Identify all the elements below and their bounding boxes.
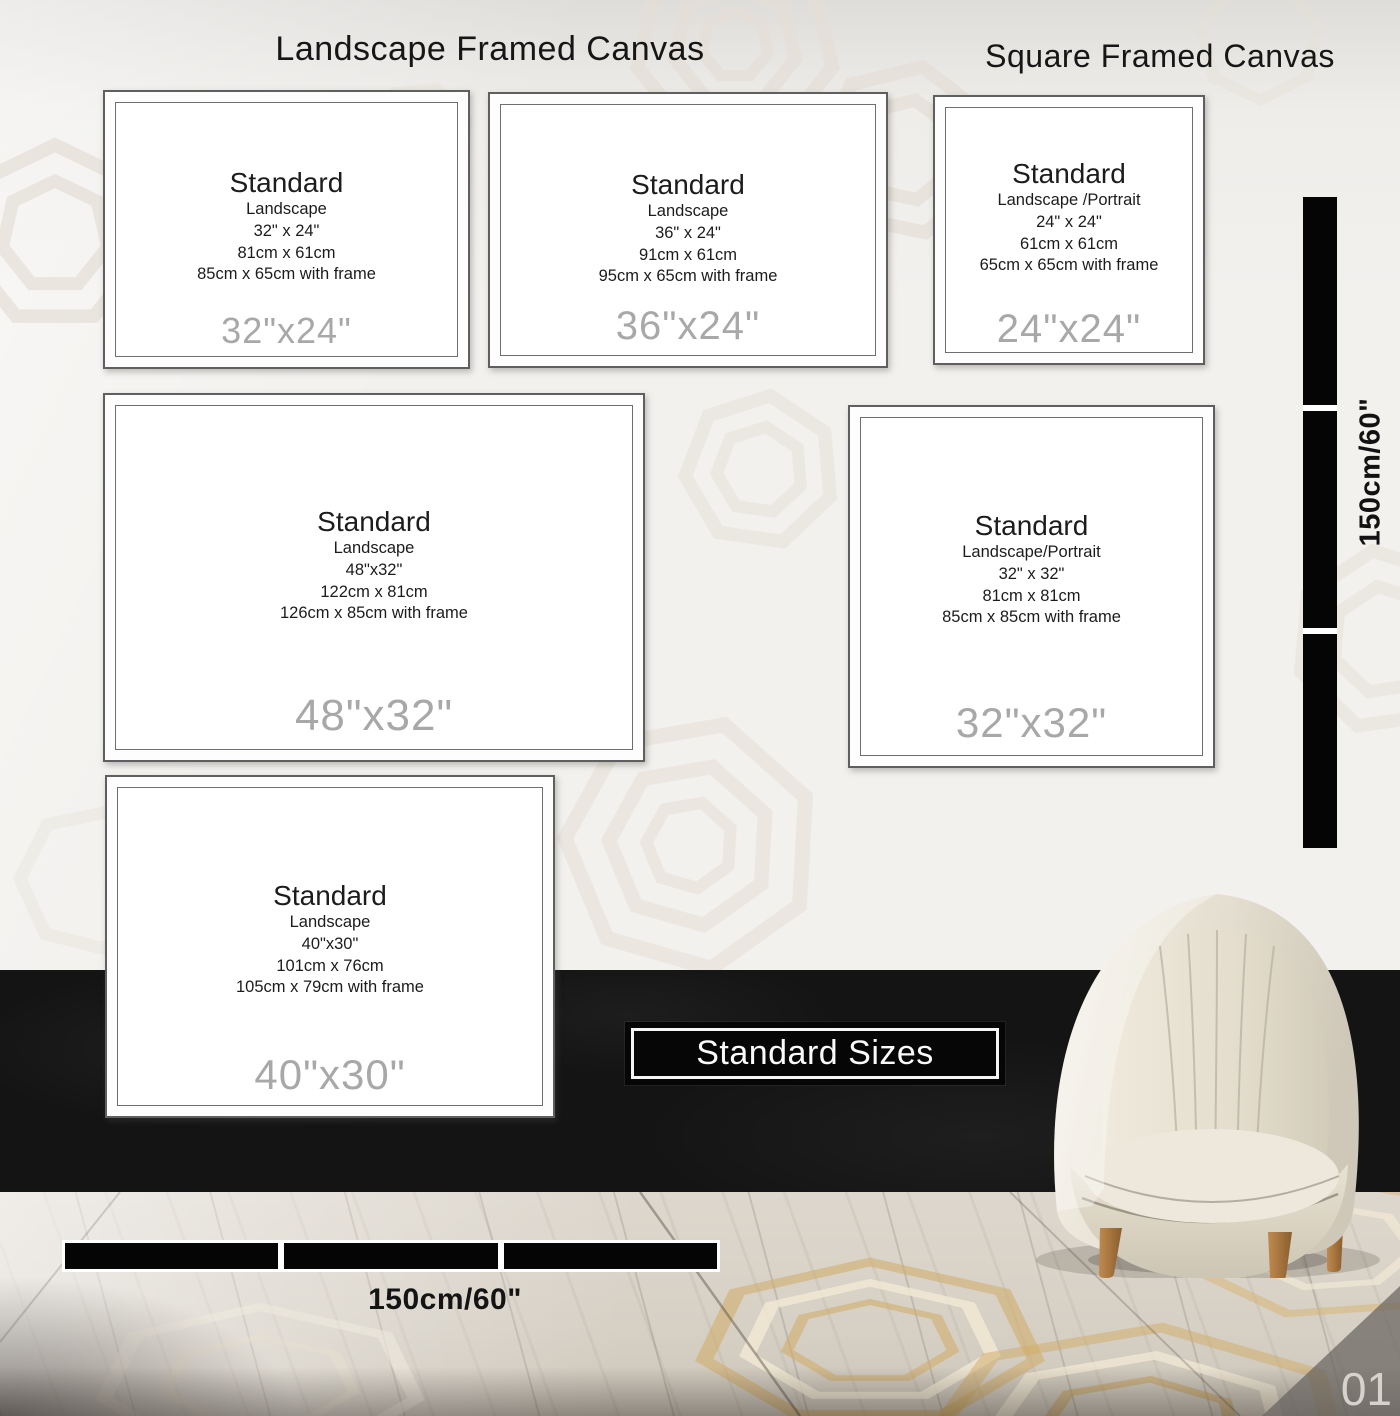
size-spec: Standard Landscape 40"x30" 101cm x 76cm … [118, 880, 542, 999]
spec-orientation: Landscape [116, 199, 457, 221]
heading-landscape-canvas: Landscape Framed Canvas [130, 30, 850, 69]
canvas-frame-24x24: Standard Landscape /Portrait 24" x 24" 6… [933, 95, 1205, 365]
spec-with-frame: 85cm x 65cm with frame [116, 264, 457, 286]
spec-cm: 61cm x 61cm [946, 234, 1192, 256]
armchair-illustration [1012, 876, 1400, 1278]
horizontal-measure-bar [62, 1240, 720, 1272]
spec-inches: 24" x 24" [946, 212, 1192, 234]
spec-cm: 101cm x 76cm [118, 956, 542, 978]
size-watermark: 36"x24" [501, 304, 875, 349]
spec-orientation: Landscape [116, 538, 632, 560]
page-number: 01 [1341, 1362, 1392, 1416]
badge-label: Standard Sizes [696, 1034, 934, 1073]
spec-with-frame: 85cm x 85cm with frame [861, 607, 1202, 629]
vertical-measure-bar [1303, 197, 1337, 848]
spec-title: Standard [861, 510, 1202, 542]
size-watermark: 32"x32" [861, 699, 1202, 747]
standard-sizes-badge: Standard Sizes [625, 1022, 1005, 1085]
canvas-frame-32x32: Standard Landscape/Portrait 32" x 32" 81… [848, 405, 1215, 768]
canvas-surface: Standard Landscape 40"x30" 101cm x 76cm … [117, 787, 543, 1106]
spec-title: Standard [946, 158, 1192, 190]
spec-with-frame: 95cm x 65cm with frame [501, 266, 875, 288]
canvas-frame-48x32: Standard Landscape 48"x32" 122cm x 81cm … [103, 393, 645, 762]
spec-cm: 81cm x 81cm [861, 586, 1202, 608]
size-spec: Standard Landscape 36" x 24" 91cm x 61cm… [501, 169, 875, 288]
spec-cm: 122cm x 81cm [116, 582, 632, 604]
ruler-segment [1303, 197, 1337, 405]
size-spec: Standard Landscape 48"x32" 122cm x 81cm … [116, 506, 632, 625]
spec-title: Standard [118, 880, 542, 912]
vertical-measure-label: 150cm/60" [1355, 398, 1388, 547]
spec-inches: 48"x32" [116, 560, 632, 582]
spec-with-frame: 105cm x 79cm with frame [118, 977, 542, 999]
heading-square-canvas: Square Framed Canvas [930, 38, 1390, 75]
size-spec: Standard Landscape /Portrait 24" x 24" 6… [946, 158, 1192, 277]
spec-cm: 91cm x 61cm [501, 245, 875, 267]
size-spec: Standard Landscape/Portrait 32" x 32" 81… [861, 510, 1202, 629]
size-watermark: 40"x30" [118, 1051, 542, 1099]
horizontal-measure-label: 150cm/60" [300, 1283, 590, 1317]
spec-orientation: Landscape [501, 201, 875, 223]
size-watermark: 48"x32" [116, 691, 632, 741]
size-chart-poster: Landscape Framed Canvas Square Framed Ca… [0, 0, 1400, 1416]
canvas-frame-36x24: Standard Landscape 36" x 24" 91cm x 61cm… [488, 92, 888, 368]
size-spec: Standard Landscape 32" x 24" 81cm x 61cm… [116, 167, 457, 286]
canvas-surface: Standard Landscape 48"x32" 122cm x 81cm … [115, 405, 633, 750]
ruler-segment [1303, 411, 1337, 628]
canvas-frame-40x30: Standard Landscape 40"x30" 101cm x 76cm … [105, 775, 555, 1118]
canvas-surface: Standard Landscape /Portrait 24" x 24" 6… [945, 107, 1193, 353]
canvas-surface: Standard Landscape 32" x 24" 81cm x 61cm… [115, 102, 458, 357]
spec-inches: 32" x 32" [861, 564, 1202, 586]
spec-orientation: Landscape /Portrait [946, 190, 1192, 212]
ruler-segment [65, 1243, 278, 1269]
canvas-surface: Standard Landscape/Portrait 32" x 32" 81… [860, 417, 1203, 756]
spec-orientation: Landscape/Portrait [861, 542, 1202, 564]
size-watermark: 32"x24" [116, 310, 457, 352]
spec-title: Standard [501, 169, 875, 201]
canvas-frame-32x24: Standard Landscape 32" x 24" 81cm x 61cm… [103, 90, 470, 369]
spec-title: Standard [116, 506, 632, 538]
ruler-segment [284, 1243, 497, 1269]
badge-border: Standard Sizes [631, 1028, 999, 1079]
spec-inches: 32" x 24" [116, 221, 457, 243]
spec-orientation: Landscape [118, 912, 542, 934]
spec-cm: 81cm x 61cm [116, 243, 457, 265]
spec-title: Standard [116, 167, 457, 199]
spec-with-frame: 65cm x 65cm with frame [946, 255, 1192, 277]
canvas-surface: Standard Landscape 36" x 24" 91cm x 61cm… [500, 104, 876, 356]
spec-with-frame: 126cm x 85cm with frame [116, 603, 632, 625]
size-watermark: 24"x24" [946, 307, 1192, 352]
spec-inches: 36" x 24" [501, 223, 875, 245]
spec-inches: 40"x30" [118, 934, 542, 956]
ruler-segment [504, 1243, 717, 1269]
ruler-segment [1303, 634, 1337, 848]
